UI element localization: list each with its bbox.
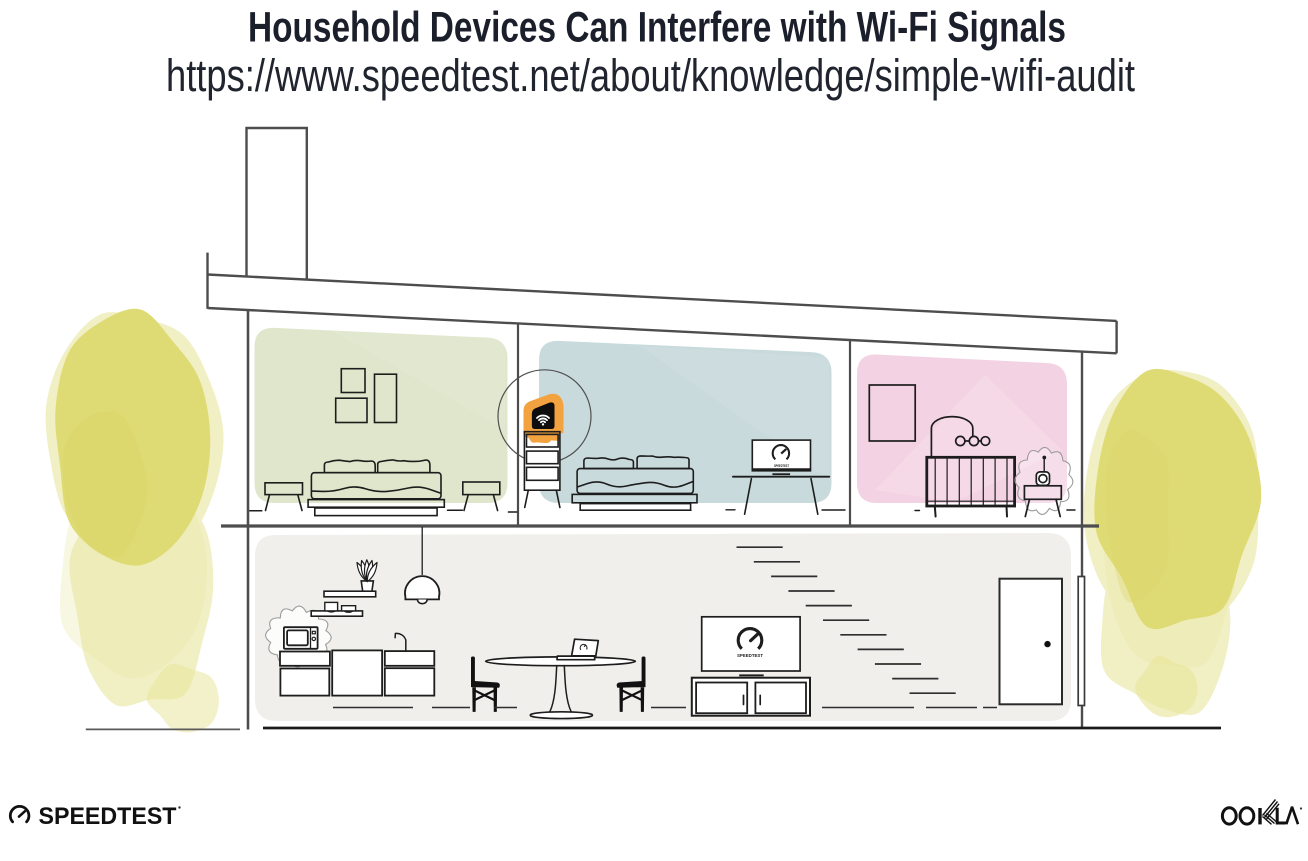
svg-text:Household Devices Can Interfer: Household Devices Can Interfere with Wi-… [248,3,1066,51]
svg-text:SPEEDTEST: SPEEDTEST [737,653,763,658]
svg-text:SPEEDTEST: SPEEDTEST [39,803,177,830]
svg-text:https://www.speedtest.net/abou: https://www.speedtest.net/about/knowledg… [166,50,1135,101]
svg-text:SPEEDTEST: SPEEDTEST [774,464,789,468]
